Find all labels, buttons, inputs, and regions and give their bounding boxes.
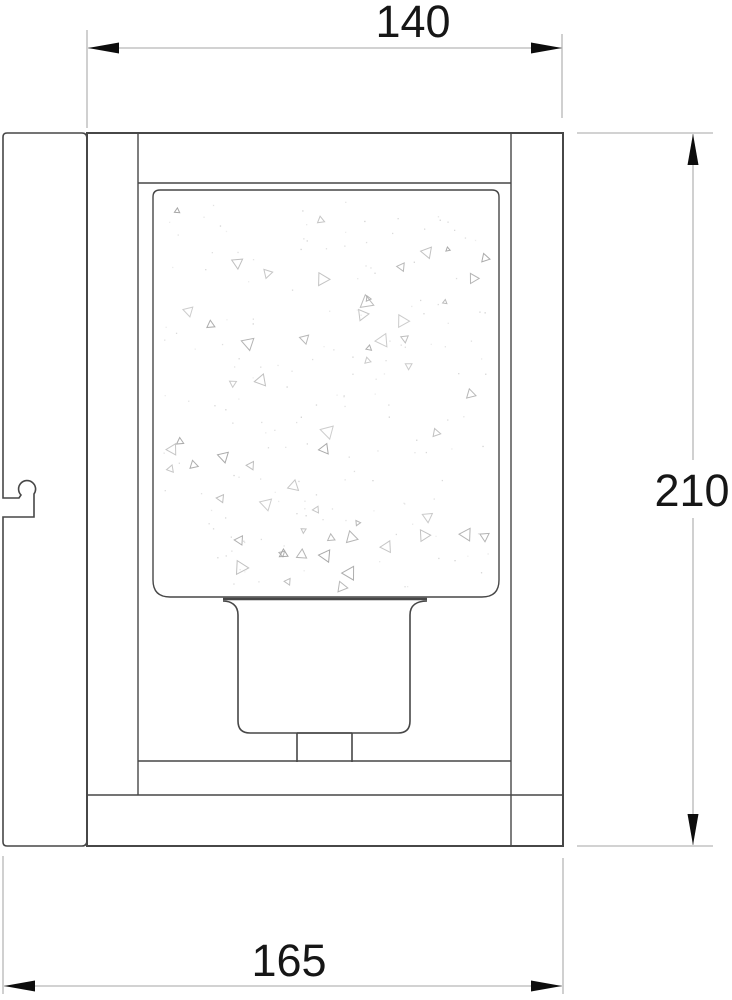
technical-drawing-canvas: 140 210 165 — [0, 0, 732, 1000]
fixture-geometry — [3, 133, 563, 846]
dim-arrow-right — [531, 981, 562, 992]
socket-cup — [223, 601, 427, 733]
dimension-label-top: 140 — [375, 0, 450, 47]
fixture-outer-frame — [87, 133, 563, 846]
dim-arrow-left — [88, 43, 119, 54]
dimension-label-bottom: 165 — [251, 935, 326, 986]
dimension-right: 210 — [577, 133, 730, 846]
dimension-top: 140 — [87, 0, 562, 128]
socket-stem — [297, 733, 352, 762]
dimension-label-right: 210 — [654, 465, 729, 516]
wall-mount-plate — [3, 133, 87, 846]
sconce-elevation-drawing: 140 210 165 — [0, 0, 732, 1000]
glass-seeded-texture — [164, 202, 491, 592]
dim-arrow-up — [688, 134, 699, 165]
dim-arrow-right — [531, 43, 562, 54]
dim-arrow-left — [4, 981, 35, 992]
dim-arrow-down — [688, 814, 699, 845]
dimension-bottom: 165 — [3, 856, 563, 994]
